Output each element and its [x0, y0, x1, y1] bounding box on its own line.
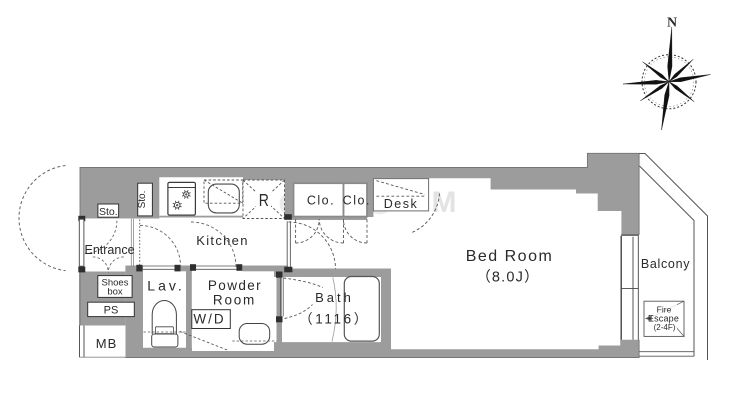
svg-text:MB: MB — [96, 336, 118, 351]
svg-text:Bed Room: Bed Room — [466, 248, 554, 265]
svg-text:W/D: W/D — [193, 312, 225, 327]
svg-text:Room: Room — [213, 293, 256, 308]
svg-text:N: N — [667, 16, 677, 31]
svg-text:Sto.: Sto. — [99, 206, 118, 218]
svg-text:Kitchen: Kitchen — [196, 233, 248, 248]
svg-text:Entrance: Entrance — [84, 243, 134, 257]
svg-text:（1116）: （1116） — [299, 312, 370, 327]
svg-text:Sto.: Sto. — [137, 191, 148, 209]
svg-text:Desk: Desk — [384, 197, 418, 211]
svg-text:box: box — [107, 287, 123, 298]
svg-text:Powder: Powder — [208, 278, 262, 293]
svg-text:PS: PS — [104, 304, 119, 316]
svg-text:Bath: Bath — [315, 290, 354, 305]
svg-text:Lav.: Lav. — [147, 278, 184, 294]
svg-text:Escape: Escape — [648, 314, 679, 324]
svg-text:R: R — [259, 190, 269, 210]
svg-text:（8.0J）: （8.0J） — [476, 269, 540, 286]
svg-text:(2-4F): (2-4F) — [654, 323, 676, 332]
svg-text:Clo.: Clo. — [343, 193, 371, 207]
svg-text:Balcony: Balcony — [641, 257, 690, 271]
svg-text:M: M — [432, 186, 457, 219]
svg-text:Clo.: Clo. — [307, 193, 335, 207]
